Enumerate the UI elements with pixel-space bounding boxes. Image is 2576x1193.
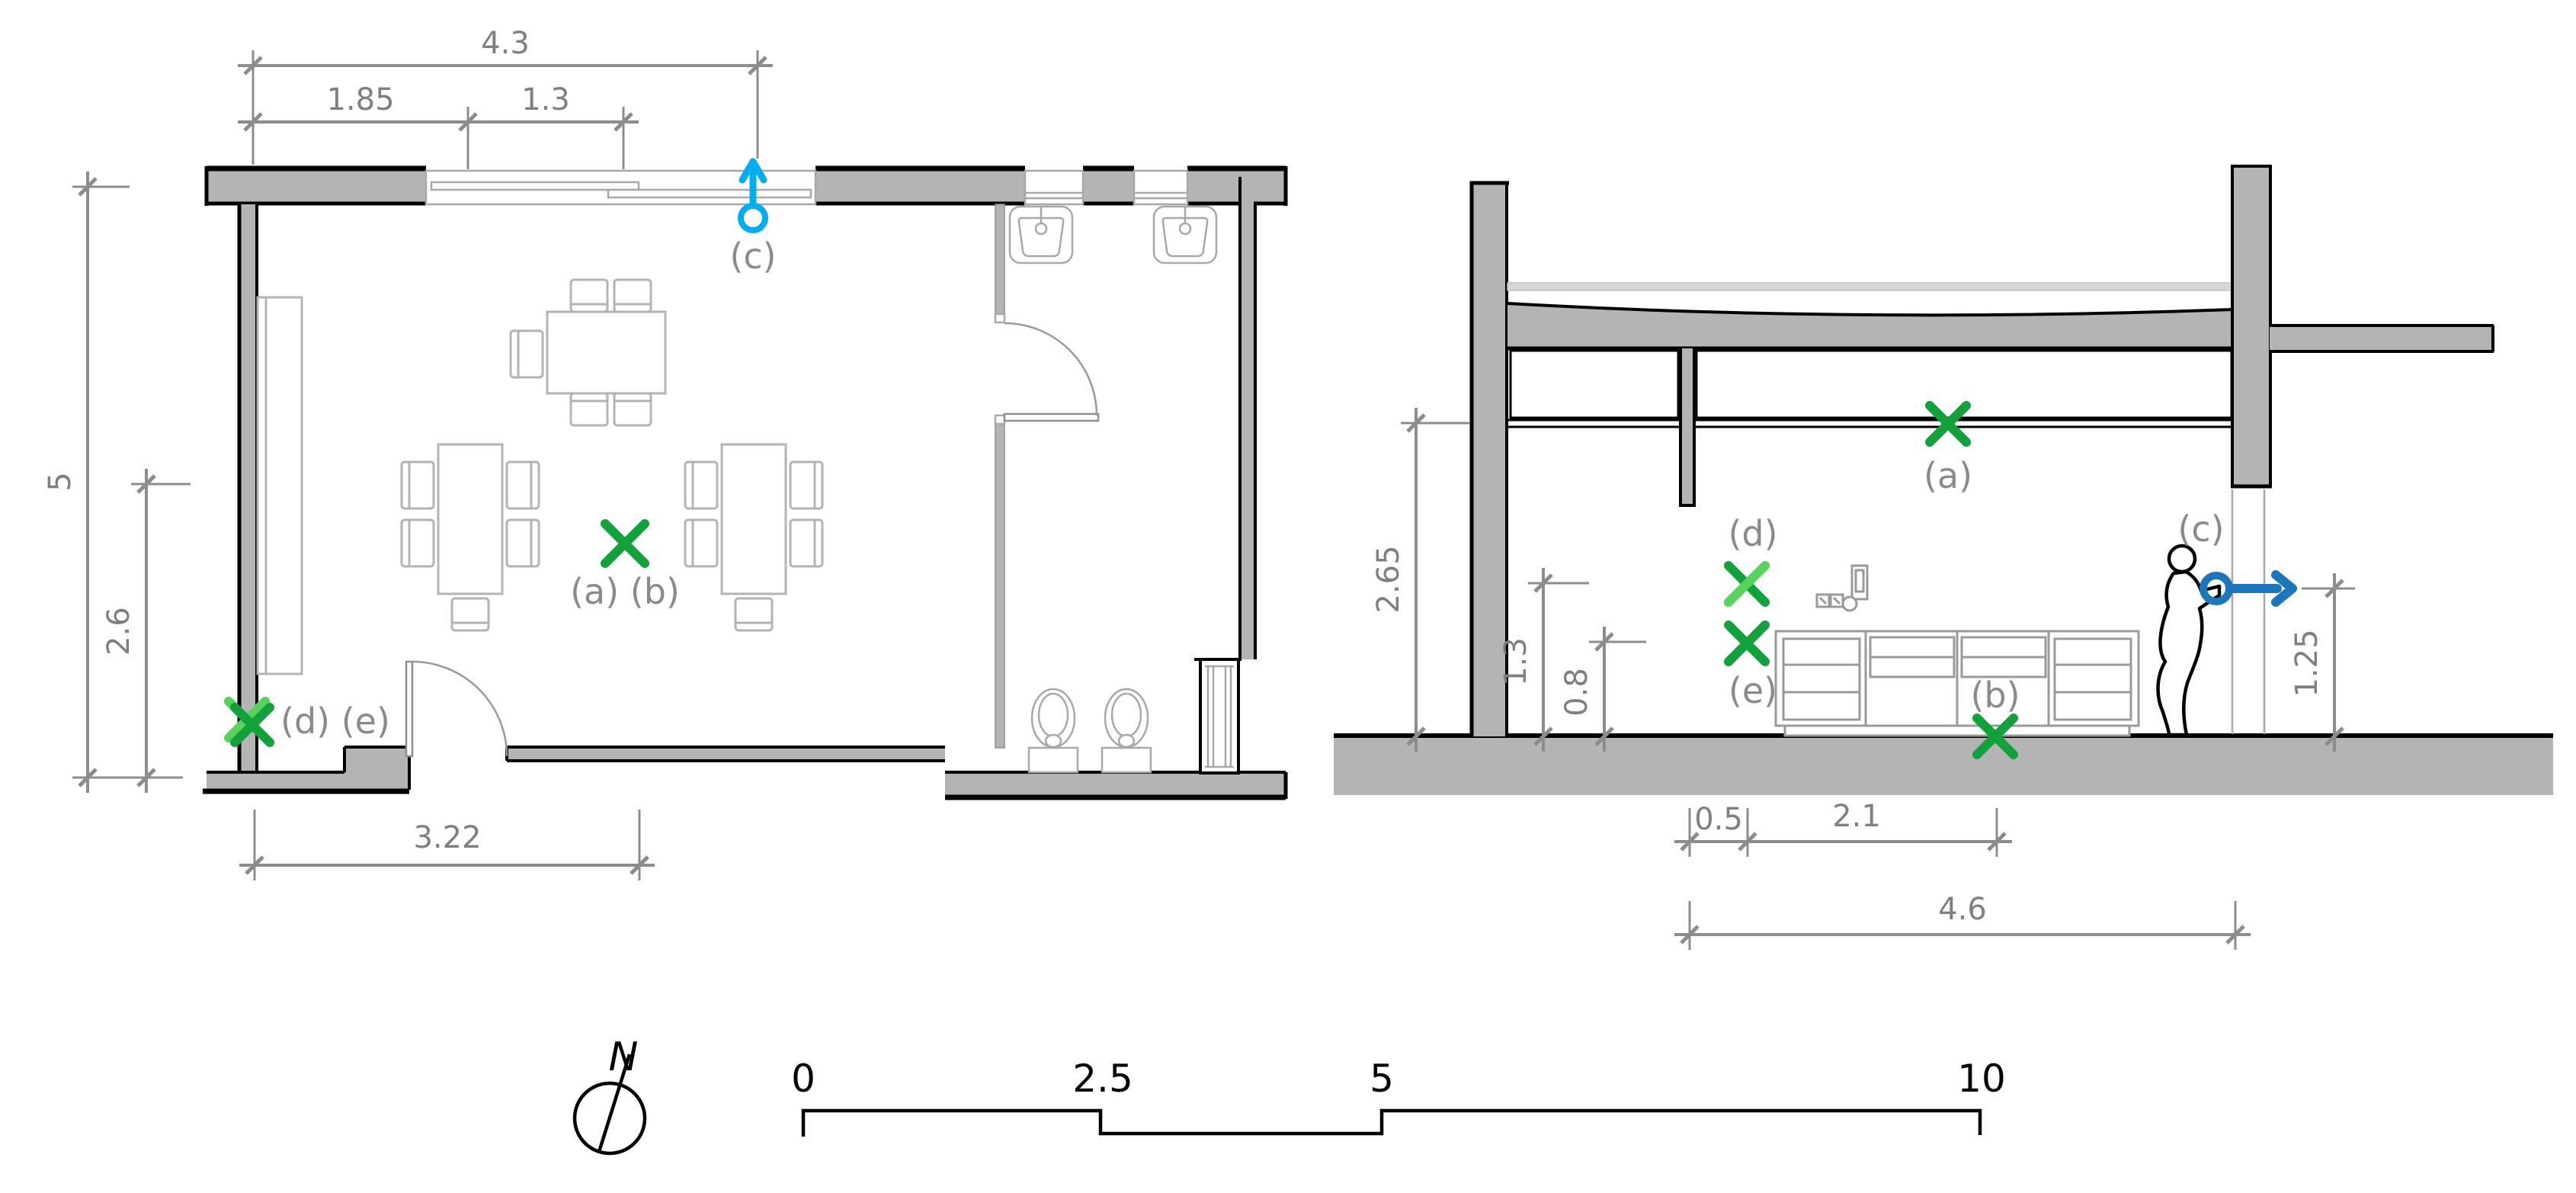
scale-tick-0: 0 <box>791 1057 815 1101</box>
marker-d-section-icon <box>1729 566 1765 602</box>
svg-text:0.5: 0.5 <box>1694 802 1743 837</box>
marker-e-section-icon <box>1729 625 1765 662</box>
plan-bath-partition <box>995 204 1004 748</box>
dining-table-top <box>511 280 665 425</box>
sink-icon <box>1010 207 1072 263</box>
sink-icon <box>1154 207 1216 263</box>
section-window <box>2232 489 2264 734</box>
svg-text:1.25: 1.25 <box>2289 629 2324 697</box>
marker-de-plan-label: (d) (e) <box>280 701 390 742</box>
drawing-sheet: (c) (a) (b) (d) (e) 4.3 <box>0 0 2576 1193</box>
svg-text:2.65: 2.65 <box>1371 545 1406 613</box>
svg-text:2.1: 2.1 <box>1832 799 1881 834</box>
svg-text:3.22: 3.22 <box>413 820 481 855</box>
plan-window-bath-2 <box>1134 171 1187 204</box>
scale-tick-5: 5 <box>1370 1057 1394 1101</box>
plan-entry-door <box>406 662 507 756</box>
socket-icon <box>1817 595 1843 607</box>
svg-text:4.6: 4.6 <box>1938 892 1987 927</box>
floor-plan: (c) (a) (b) (d) (e) 4.3 <box>43 26 1286 880</box>
svg-text:0.8: 0.8 <box>1559 668 1594 717</box>
marker-a-section-icon <box>1930 406 1966 442</box>
dim-section-bottom-split: 0.5 2.1 <box>1674 799 2012 857</box>
section-roof <box>1507 283 2233 348</box>
plan-left-wall <box>239 204 258 790</box>
dining-table-left <box>402 444 539 630</box>
marker-a-section-label: (a) <box>1924 455 1972 496</box>
marker-c-section-label: (c) <box>2177 508 2224 550</box>
section-cabinet <box>1776 631 2139 736</box>
plan-wallboard <box>258 297 302 674</box>
plan-window-bath-1 <box>1025 171 1083 204</box>
dim-section-right: 1.25 <box>2289 573 2355 752</box>
plan-bath-door <box>1004 323 1098 421</box>
section-ceiling <box>1507 351 2233 427</box>
dim-left-total: 5 <box>43 172 183 793</box>
scale-tick-2-5: 2.5 <box>1072 1057 1133 1101</box>
dining-table-right <box>685 444 822 630</box>
toilet-icon <box>1029 689 1078 772</box>
svg-text:1.3: 1.3 <box>521 82 570 117</box>
dim-section-bottom-total: 4.6 <box>1674 892 2251 950</box>
dim-section-mid: 1.3 <box>1498 568 1589 752</box>
dim-left-inner: 2.6 <box>101 469 191 793</box>
dim-bottom: 3.22 <box>239 810 655 880</box>
scale-tick-10: 10 <box>1957 1057 2006 1101</box>
cross-section: (a) (d) (e) (b) (c) <box>1334 165 2553 950</box>
svg-text:1.3: 1.3 <box>1498 637 1533 686</box>
scale-bar: 0 2.5 5 10 <box>791 1057 2006 1137</box>
section-ground <box>1334 736 2553 795</box>
marker-ab-plan-icon <box>605 524 645 563</box>
toilet-icon <box>1102 689 1151 772</box>
plan-window-main <box>426 171 815 204</box>
dim-section-low: 0.8 <box>1559 627 1646 752</box>
svg-text:2.6: 2.6 <box>101 607 136 656</box>
section-beam <box>1679 348 1696 505</box>
north-label: N <box>609 1034 639 1080</box>
marker-b-section-label: (b) <box>1970 675 2020 716</box>
marker-c-plan-label: (c) <box>729 236 776 277</box>
marker-e-section-label: (e) <box>1729 670 1777 711</box>
north-arrow-icon: N <box>575 1034 645 1153</box>
marker-ab-plan-label: (a) (b) <box>570 571 680 612</box>
dim-top-total: 4.3 <box>238 26 773 165</box>
svg-text:1.85: 1.85 <box>326 82 394 117</box>
dim-top-split: 1.85 1.3 <box>238 82 639 169</box>
intercom-icon <box>1843 566 1867 611</box>
plan-shaft-folding-door <box>1200 659 1238 773</box>
section-right-column <box>2231 165 2494 488</box>
svg-text:4.3: 4.3 <box>481 26 530 61</box>
architectural-drawing: (c) (a) (b) (d) (e) 4.3 <box>0 0 2576 1193</box>
dim-section-height: 2.65 <box>1371 408 1469 752</box>
marker-d-section-label: (d) <box>1728 513 1777 554</box>
svg-text:5: 5 <box>43 472 78 491</box>
